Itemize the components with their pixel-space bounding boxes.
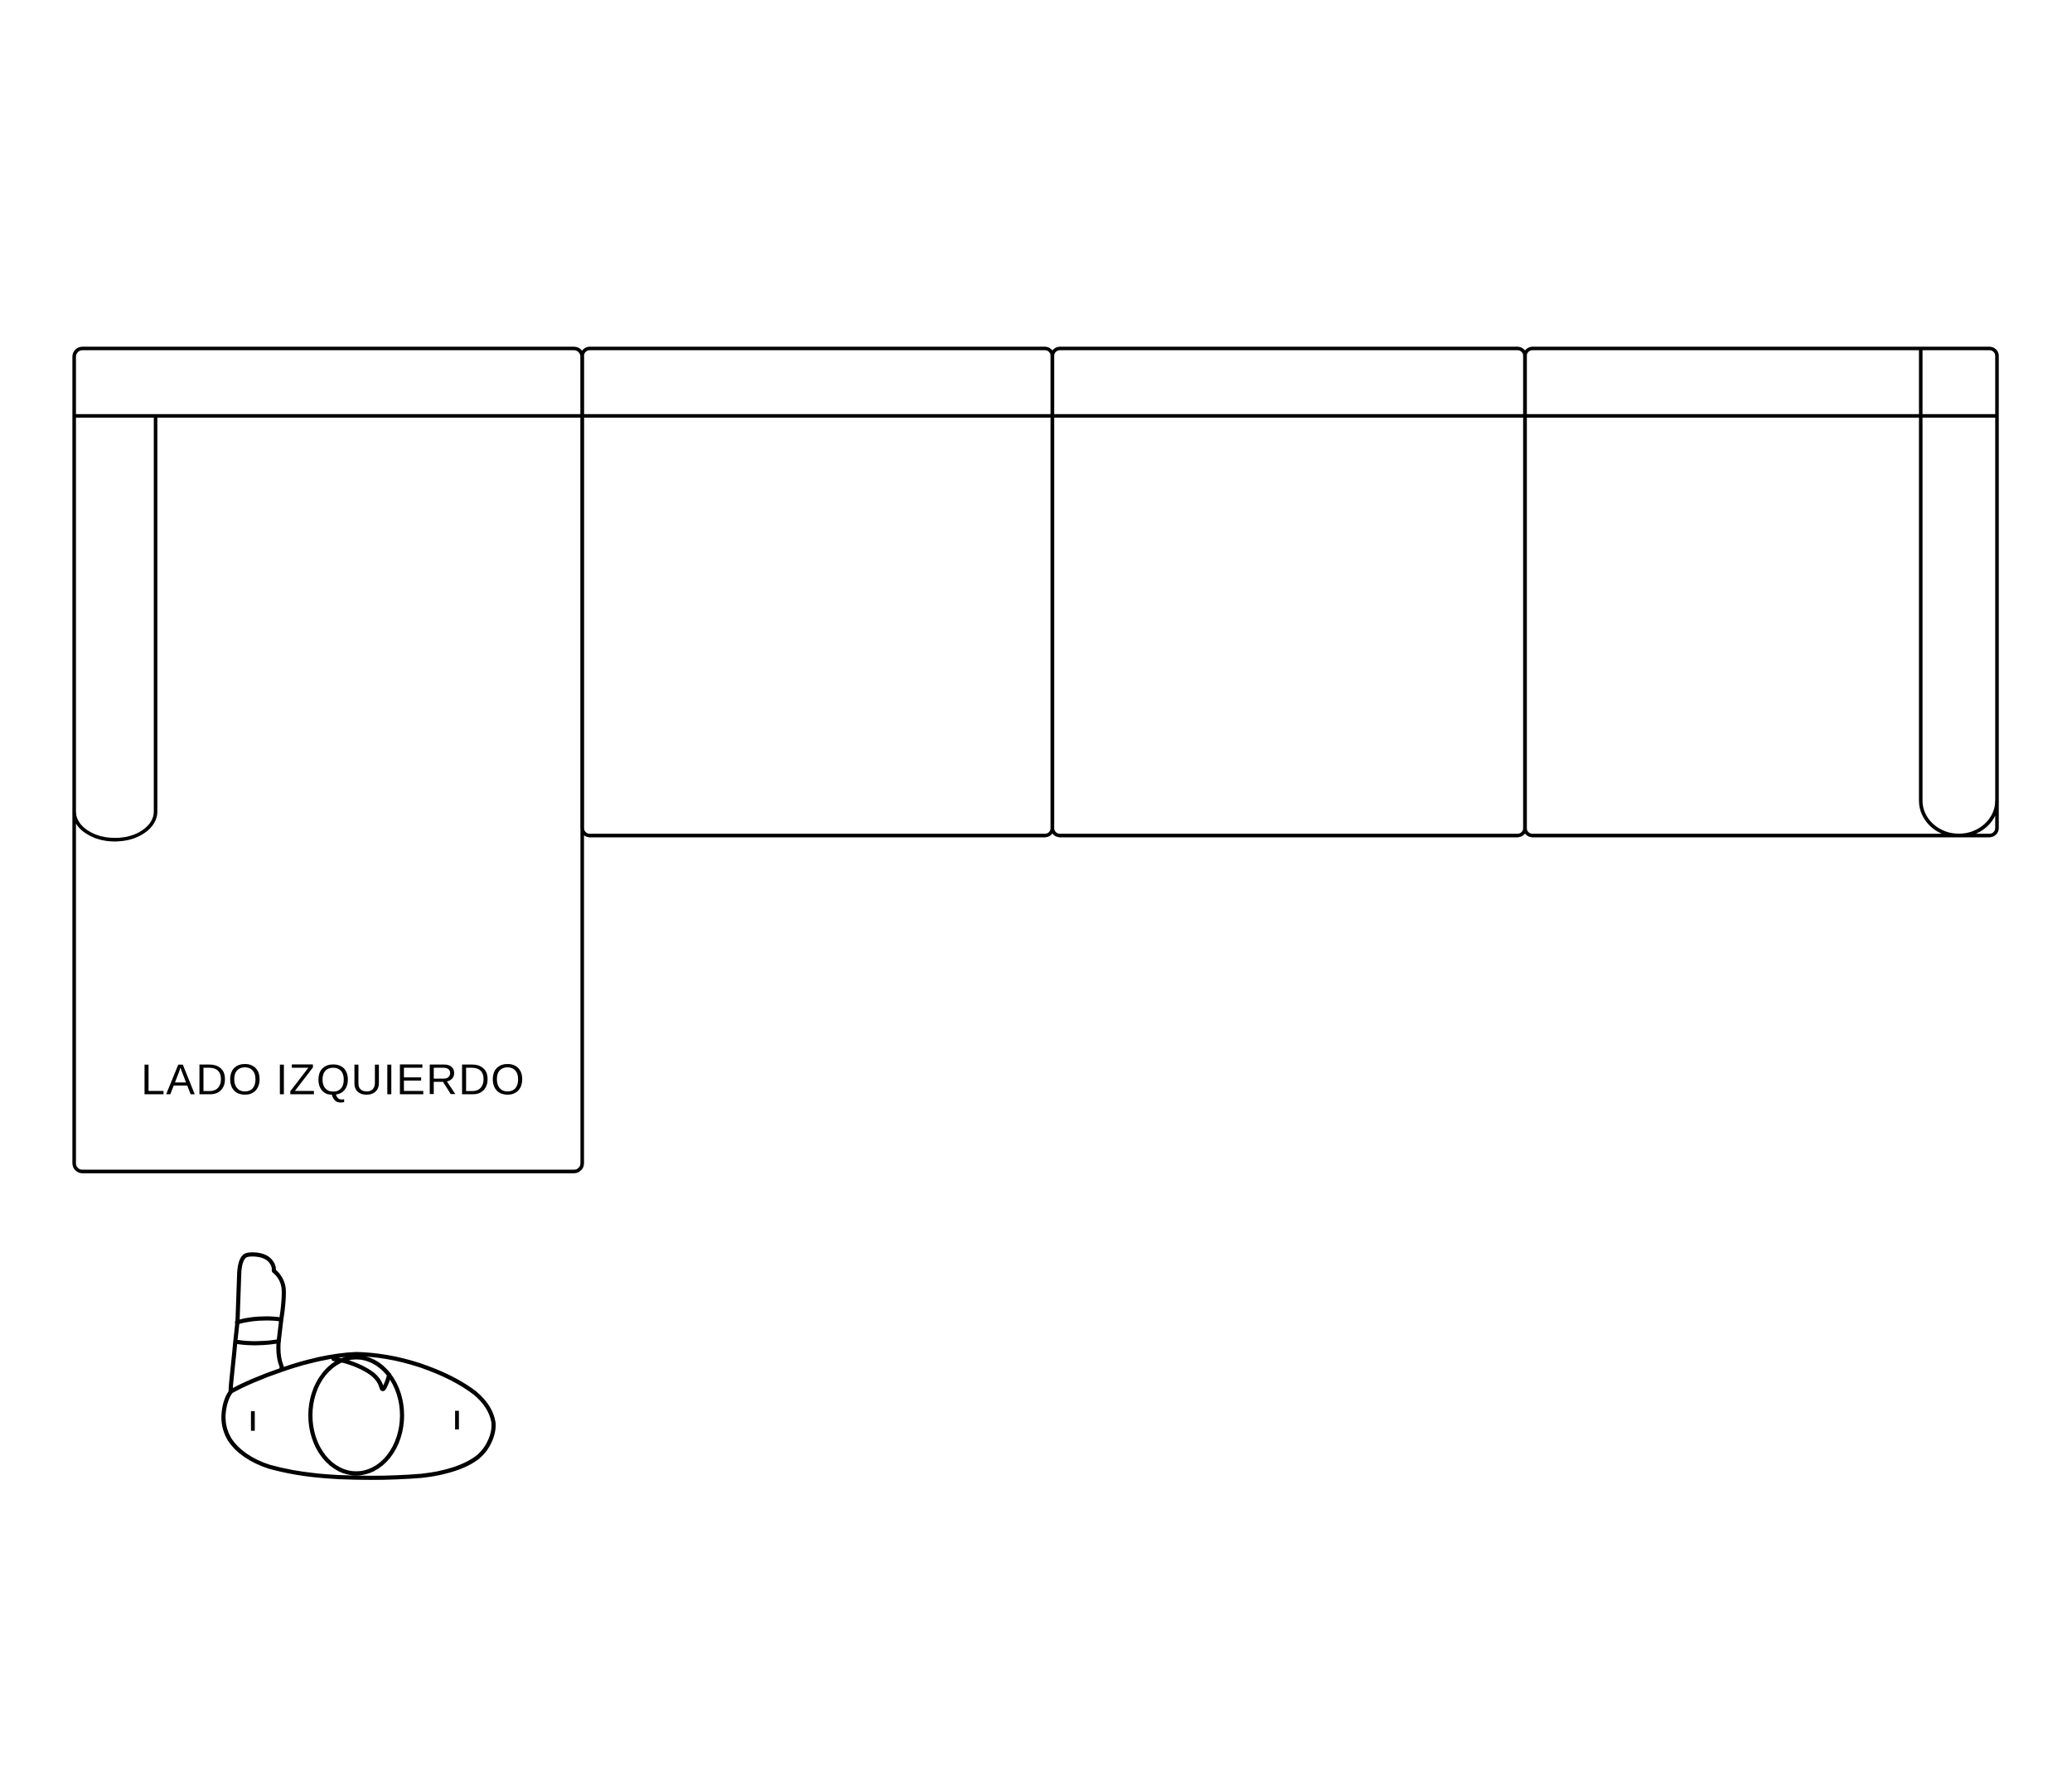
svg-text:LADO IZQUIERDO: LADO IZQUIERDO xyxy=(141,1057,525,1105)
